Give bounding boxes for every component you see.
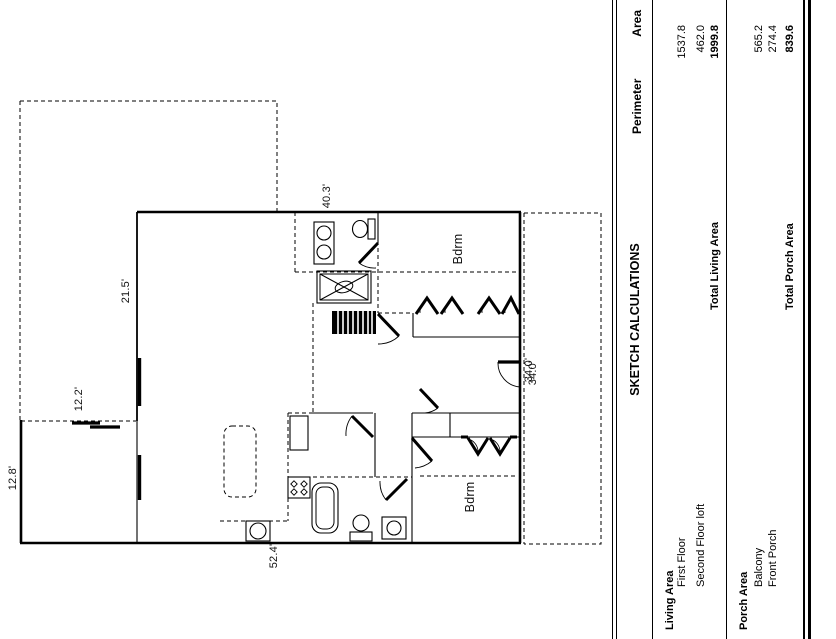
wc-door [359,243,378,263]
row-label-first-floor: First Floor [676,538,688,588]
upper-bathroom [314,212,378,303]
floor-plan-drawing [0,0,612,639]
closet-bifold-doors-upper [413,298,520,337]
kitchen-island [224,426,256,497]
column-header-area: Area [631,10,644,37]
toilet-upper [353,221,368,238]
dim-room-left: 12.8' [7,466,19,491]
section-heading-porch-area: Porch Area [738,572,750,630]
rule-top-inner [616,0,617,639]
stair-door [378,314,399,344]
row-label-front-porch: Front Porch [767,530,779,587]
dim-left-wall: 21.5' [120,279,132,304]
total-porch-area-label: Total Porch Area [784,223,796,310]
rule-bottom-inner [803,0,805,639]
dim-right-wall-overlay: 34.0' [527,361,539,386]
exterior-walls [20,212,521,543]
interior-walls [310,413,520,543]
fridge [290,416,308,450]
sketch-calculations-panel: SKETCH CALCULATIONS Perimeter Area Livin… [612,0,836,639]
dim-bottom-wall: 52.4' [268,544,280,569]
row-area-balcony: 565.2 [753,25,765,53]
rule-top-outer [612,0,613,639]
entry-door [498,362,521,387]
column-header-perimeter: Perimeter [631,79,644,134]
dim-top-wall: 40.3' [321,184,333,209]
row-area-front-porch: 274.4 [767,25,779,53]
dim-room-top: 12.2' [73,387,85,412]
floor-plan: 40.3' 21.5' 12.2' 12.8' 52.4' 34.0' 34.0… [0,0,612,639]
stove [288,477,310,498]
total-living-area-label: Total Living Area [709,222,721,310]
total-porch-area-value: 839.6 [784,25,796,53]
rule-section [726,0,727,639]
balcony-outline [20,101,277,421]
room-label-bedroom-upper: Bdrm [451,234,465,265]
lower-bathroom [312,479,407,541]
bathroom-door [386,479,407,500]
closet-bifold-doors-lower [461,437,517,454]
room-label-bedroom-lower: Bdrm [463,482,477,513]
vanity [314,222,334,264]
row-label-second-floor-loft: Second Floor loft [695,504,707,587]
lower-left-room [21,421,137,543]
total-living-area-value: 1999.8 [709,25,721,59]
washer [382,517,406,539]
row-area-second-floor-loft: 462.0 [695,25,707,53]
rule-bottom-outer [808,0,811,639]
row-area-first-floor: 1537.8 [676,25,688,59]
corridor-doors [346,389,438,468]
section-heading-living-area: Living Area [664,571,676,631]
row-label-balcony: Balcony [753,548,765,587]
stairs [332,311,376,334]
sketch-report-page: 40.3' 21.5' 12.2' 12.8' 52.4' 34.0' 34.0… [0,0,836,639]
rule-header [652,0,653,639]
kitchen [220,413,313,541]
toilet-lower [353,515,369,531]
